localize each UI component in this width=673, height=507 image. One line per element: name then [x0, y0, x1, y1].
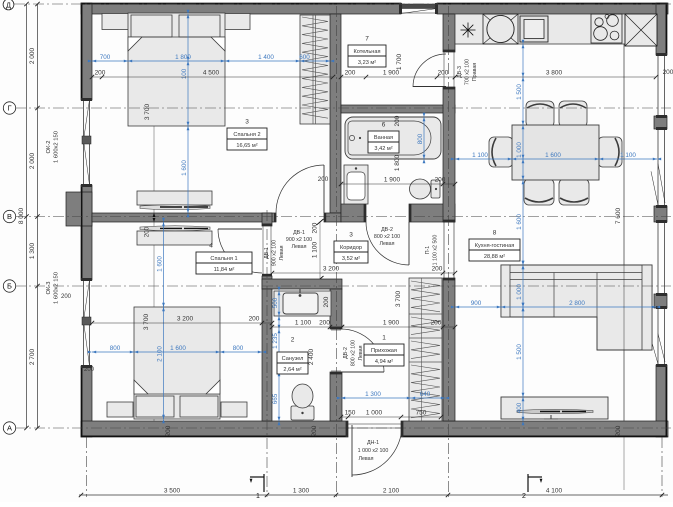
- svg-text:200: 200: [615, 425, 622, 436]
- svg-text:2 800: 2 800: [569, 300, 585, 307]
- svg-text:3 700: 3 700: [143, 313, 150, 330]
- svg-text:Левая: Левая: [279, 245, 285, 260]
- svg-text:Ванная: Ванная: [374, 135, 393, 141]
- svg-text:В: В: [7, 212, 12, 221]
- svg-text:1 300: 1 300: [29, 242, 36, 259]
- svg-text:200: 200: [249, 316, 260, 323]
- svg-text:Левая: Левая: [292, 244, 307, 250]
- svg-text:11,84 м²: 11,84 м²: [214, 267, 235, 273]
- svg-text:700: 700: [100, 54, 111, 61]
- svg-text:800 х2 100: 800 х2 100: [374, 234, 400, 240]
- svg-text:200: 200: [311, 425, 318, 436]
- svg-text:150: 150: [345, 410, 356, 417]
- svg-text:1 100: 1 100: [295, 320, 312, 327]
- svg-text:1 100: 1 100: [472, 152, 488, 159]
- svg-text:Д: Д: [6, 2, 11, 9]
- svg-text:Прихожая: Прихожая: [371, 348, 397, 354]
- svg-text:3: 3: [349, 232, 353, 239]
- svg-text:3,52 м²: 3,52 м²: [342, 256, 360, 262]
- svg-text:1 000 х2 100: 1 000 х2 100: [358, 448, 389, 454]
- svg-text:7: 7: [365, 36, 369, 43]
- svg-text:3,42 м²: 3,42 м²: [374, 146, 392, 152]
- svg-text:ДВ-3: ДВ-3: [457, 66, 463, 78]
- svg-text:ОК-2: ОК-2: [46, 140, 52, 153]
- svg-text:3: 3: [245, 119, 249, 126]
- svg-text:2 700: 2 700: [29, 348, 36, 365]
- svg-text:3 200: 3 200: [177, 316, 194, 323]
- svg-text:200: 200: [61, 294, 72, 300]
- svg-text:Левая: Левая: [358, 345, 364, 360]
- svg-text:1 600: 1 600: [181, 160, 188, 176]
- svg-text:Спальня 2: Спальня 2: [233, 132, 260, 138]
- svg-text:200: 200: [319, 320, 330, 327]
- svg-text:200: 200: [432, 266, 443, 273]
- svg-text:Санузел: Санузел: [282, 356, 304, 362]
- svg-text:4: 4: [209, 243, 213, 250]
- svg-text:8: 8: [493, 230, 497, 237]
- svg-text:2 000: 2 000: [29, 47, 36, 64]
- svg-text:200: 200: [438, 70, 449, 77]
- svg-text:Правая: Правая: [472, 63, 478, 81]
- svg-text:640: 640: [420, 391, 431, 398]
- svg-text:3 700: 3 700: [395, 290, 402, 307]
- svg-text:900 х2 100: 900 х2 100: [272, 240, 278, 266]
- svg-text:400: 400: [516, 402, 523, 413]
- svg-text:8 000: 8 000: [18, 207, 25, 224]
- svg-text:7 600: 7 600: [615, 207, 622, 224]
- svg-text:3 500: 3 500: [164, 488, 181, 495]
- svg-text:200: 200: [84, 367, 95, 373]
- svg-text:200: 200: [663, 69, 673, 76]
- svg-text:1 000: 1 000: [366, 410, 383, 417]
- svg-text:665: 665: [272, 393, 279, 404]
- svg-text:3 800: 3 800: [546, 70, 563, 77]
- svg-text:1 100 х2 500: 1 100 х2 500: [433, 235, 439, 266]
- svg-text:А: А: [7, 424, 12, 433]
- svg-text:3 700: 3 700: [144, 103, 151, 120]
- svg-text:900 х2 100: 900 х2 100: [286, 237, 312, 243]
- svg-text:1 900: 1 900: [384, 177, 401, 184]
- svg-text:200: 200: [165, 425, 172, 436]
- svg-text:200: 200: [144, 226, 151, 237]
- svg-text:800 х2 100: 800 х2 100: [351, 340, 357, 366]
- svg-text:1 500: 1 500: [516, 344, 523, 360]
- svg-text:2 100: 2 100: [157, 346, 164, 362]
- svg-text:1 600х2 150: 1 600х2 150: [54, 272, 60, 304]
- svg-text:1 235: 1 235: [272, 333, 279, 349]
- svg-text:Спальня 1: Спальня 1: [210, 256, 237, 262]
- svg-text:1: 1: [256, 493, 260, 500]
- svg-text:ОК-3: ОК-3: [46, 281, 52, 294]
- svg-text:1 400: 1 400: [258, 54, 274, 61]
- svg-text:4,94 м²: 4,94 м²: [375, 359, 393, 365]
- svg-text:4 500: 4 500: [203, 70, 220, 77]
- svg-text:1: 1: [382, 335, 386, 342]
- svg-text:1 600: 1 600: [545, 152, 561, 159]
- svg-text:1 600: 1 600: [170, 345, 186, 352]
- svg-text:1 900: 1 900: [383, 320, 400, 327]
- svg-text:ДВ-1: ДВ-1: [293, 230, 305, 236]
- svg-text:200: 200: [345, 70, 356, 77]
- svg-text:1 300: 1 300: [293, 488, 310, 495]
- svg-text:750: 750: [416, 410, 427, 417]
- svg-text:1 100: 1 100: [312, 241, 319, 258]
- svg-text:1 000: 1 000: [516, 142, 523, 158]
- svg-text:2,64 м²: 2,64 м²: [283, 367, 301, 373]
- svg-text:1 800: 1 800: [394, 154, 401, 171]
- svg-text:2: 2: [522, 493, 526, 500]
- svg-text:1 700: 1 700: [396, 53, 403, 70]
- svg-text:П-1: П-1: [425, 246, 431, 255]
- svg-text:800: 800: [417, 133, 424, 144]
- svg-text:Кухня-гостиная: Кухня-гостиная: [475, 243, 515, 249]
- svg-text:200: 200: [312, 222, 319, 233]
- svg-text:2 000: 2 000: [29, 152, 36, 169]
- svg-text:700 х2 100: 700 х2 100: [465, 59, 471, 85]
- svg-text:ДВ-2: ДВ-2: [381, 227, 393, 233]
- svg-text:Б: Б: [7, 282, 12, 291]
- svg-text:200: 200: [394, 115, 401, 126]
- svg-text:Левая: Левая: [359, 456, 374, 462]
- svg-text:6: 6: [382, 122, 386, 129]
- svg-text:3,23 м²: 3,23 м²: [358, 60, 376, 66]
- svg-text:200: 200: [323, 296, 330, 307]
- svg-text:ДВ-2: ДВ-2: [343, 347, 349, 359]
- svg-text:200: 200: [318, 176, 329, 183]
- svg-text:28,88 м²: 28,88 м²: [484, 254, 505, 260]
- svg-text:4 100: 4 100: [546, 488, 563, 495]
- svg-text:Котельная: Котельная: [353, 49, 380, 55]
- svg-text:1 600х2 150: 1 600х2 150: [54, 131, 60, 163]
- svg-text:1 300: 1 300: [365, 391, 381, 398]
- svg-text:Г: Г: [7, 104, 11, 113]
- svg-text:1 100: 1 100: [620, 152, 636, 159]
- svg-text:1 500: 1 500: [516, 84, 523, 100]
- svg-text:Коридор: Коридор: [340, 245, 362, 251]
- svg-text:ДН-1: ДН-1: [367, 440, 379, 446]
- svg-text:2: 2: [291, 337, 295, 344]
- svg-text:16,65 м²: 16,65 м²: [236, 143, 257, 149]
- svg-text:800: 800: [110, 345, 121, 352]
- svg-text:500: 500: [272, 297, 279, 308]
- svg-text:1 600: 1 600: [157, 256, 164, 272]
- svg-text:900: 900: [471, 300, 482, 307]
- svg-text:1 000: 1 000: [516, 284, 523, 300]
- svg-text:100: 100: [181, 68, 188, 79]
- svg-text:200: 200: [435, 177, 446, 184]
- svg-text:3 200: 3 200: [323, 266, 340, 273]
- svg-text:2 400: 2 400: [308, 348, 315, 365]
- svg-text:800: 800: [233, 345, 244, 352]
- svg-text:600: 600: [299, 54, 310, 61]
- svg-text:Левая: Левая: [380, 241, 395, 247]
- svg-text:200: 200: [431, 320, 442, 327]
- svg-text:200: 200: [95, 70, 106, 77]
- svg-text:2 100: 2 100: [383, 488, 400, 495]
- svg-text:ДВ-1: ДВ-1: [264, 247, 270, 259]
- svg-text:1 600: 1 600: [516, 214, 523, 230]
